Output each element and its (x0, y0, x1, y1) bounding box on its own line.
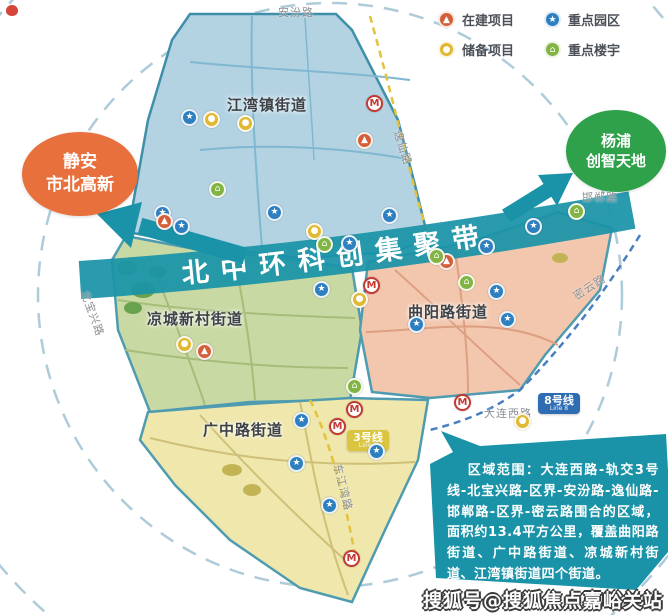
park-icon: ★ (499, 311, 516, 328)
park-icon: ★ (288, 455, 305, 472)
construction-icon: ▲ (356, 132, 373, 149)
reserve-icon: ● (203, 111, 220, 128)
park-icon: ★ (293, 412, 310, 429)
metro-station-icon: M (329, 418, 346, 435)
scope-description: 区域范围：大连西路-轨交3号线-北宝兴路-区界-安汾路-逸仙路-邯郸路-区界-密… (447, 461, 659, 586)
district-label-jiangwan: 江湾镇街道 (227, 94, 307, 115)
park-icon: ★ (341, 235, 358, 252)
legend-item-3: ⌂重点楼宇 (544, 40, 646, 59)
park-icon: ★ (368, 443, 385, 460)
building-icon: ⌂ (568, 203, 585, 220)
park-icon: ★ (408, 316, 425, 333)
park-icon: ★ (478, 238, 495, 255)
park-icon: ★ (266, 204, 283, 221)
district-label-liangcheng: 凉城新村街道 (147, 308, 243, 329)
metro-station-icon: M (343, 550, 360, 567)
reserve-icon: ● (237, 115, 254, 132)
road-label-anfen: 安汾路 (278, 4, 314, 20)
road-label-handan: 邯郸路 (582, 189, 618, 205)
legend-item-0: ▲在建项目 (438, 10, 540, 29)
legend-item-2: ●储备项目 (438, 40, 540, 59)
legend-label: 在建项目 (462, 10, 514, 29)
metro-station-icon: M (366, 95, 383, 112)
kic-callout: 杨浦 创智天地 (566, 110, 666, 192)
metro-station-icon: M (363, 277, 380, 294)
park-icon: ★ (181, 109, 198, 126)
construction-icon: ▲ (196, 343, 213, 360)
reserve-icon: ● (176, 336, 193, 353)
building-icon: ⌂ (346, 378, 363, 395)
building-icon: ⌂ (209, 181, 226, 198)
district-label-guangzhong: 广中路街道 (203, 419, 283, 440)
park-icon: ★ (488, 283, 505, 300)
building-icon: ⌂ (428, 248, 445, 265)
construction-icon: ▲ (156, 213, 173, 230)
metro-station-icon: M (346, 401, 363, 418)
corner-logo-fragment (6, 5, 18, 16)
legend-label: 重点园区 (568, 10, 620, 29)
legend-item-1: ★重点园区 (544, 10, 646, 29)
construction-icon: ▲ (438, 11, 455, 28)
shibei-hi-tech-callout: 静安 市北高新 (22, 132, 138, 216)
region-guangzhong (140, 398, 428, 602)
reserve-project-icon: ● (438, 41, 455, 58)
building-icon: ⌂ (458, 274, 475, 291)
key-park-icon: ★ (544, 11, 561, 28)
park-icon: ★ (525, 218, 542, 235)
legend-label: 储备项目 (462, 40, 514, 59)
park-icon: ★ (381, 207, 398, 224)
line8-badge: 8号线 Line 8 (538, 393, 580, 414)
park-icon: ★ (313, 281, 330, 298)
reserve-icon: ● (351, 291, 368, 308)
building-icon: ⌂ (316, 236, 333, 253)
legend-label: 重点楼宇 (568, 40, 620, 59)
legend: ▲在建项目★重点园区●储备项目⌂重点楼宇 (438, 10, 646, 59)
line8-sub: Line 8 (550, 406, 568, 412)
park-icon: ★ (173, 218, 190, 235)
key-building-icon: ⌂ (544, 41, 561, 58)
metro-station-icon: M (454, 394, 471, 411)
park-icon: ★ (321, 497, 338, 514)
watermark: 搜狐号@搜狐焦点嘉峪关站 (423, 586, 663, 613)
district-map-canvas: 北中环科创集聚带 ▲在建项目★重点园区●储备项目⌂重点楼宇 静安 市北高新 杨浦… (0, 0, 668, 615)
reserve-icon: ● (514, 413, 531, 430)
